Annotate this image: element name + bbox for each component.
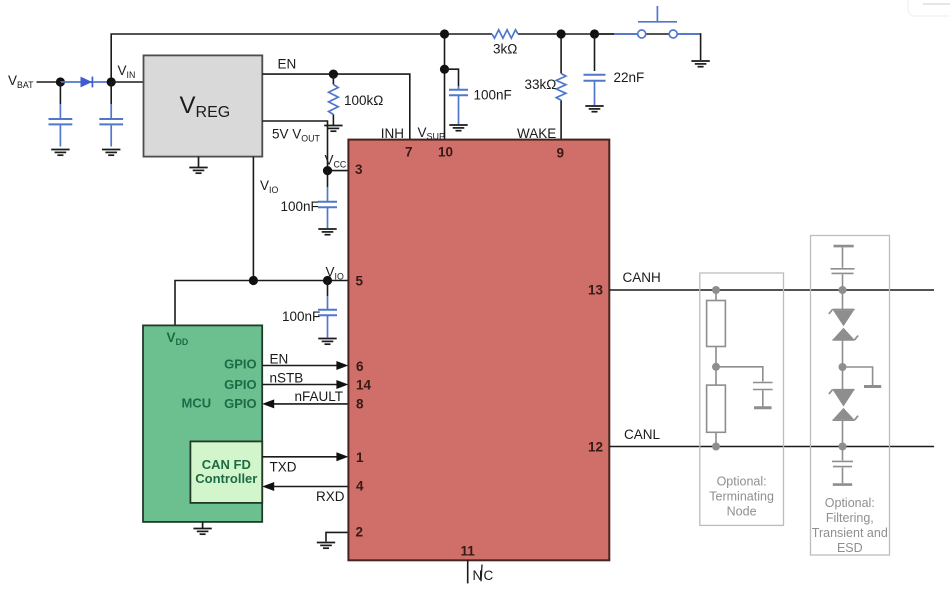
svg-text:MCU: MCU xyxy=(182,395,212,410)
svg-text:1: 1 xyxy=(356,450,364,465)
svg-text:Filtering,: Filtering, xyxy=(826,511,874,525)
svg-text:VSUP: VSUP xyxy=(418,125,446,142)
svg-text:EN: EN xyxy=(270,351,289,366)
svg-text:nFAULT: nFAULT xyxy=(295,389,344,404)
svg-text:100nF: 100nF xyxy=(281,199,319,214)
svg-text:CANH: CANH xyxy=(623,270,661,285)
svg-text:TXD: TXD xyxy=(270,460,297,475)
svg-text:RXD: RXD xyxy=(316,489,345,504)
svg-text:Transient and: Transient and xyxy=(812,526,888,540)
svg-text:GPIO: GPIO xyxy=(224,377,257,392)
svg-text:VIO: VIO xyxy=(260,178,278,195)
svg-text:2: 2 xyxy=(356,525,364,540)
svg-text:VIN: VIN xyxy=(118,63,136,80)
svg-text:VIO: VIO xyxy=(326,265,344,282)
svg-text:Controller: Controller xyxy=(195,471,257,486)
svg-text:100kΩ: 100kΩ xyxy=(344,93,383,108)
svg-text:WAKE: WAKE xyxy=(517,126,556,141)
svg-text:100nF: 100nF xyxy=(474,88,512,103)
svg-text:14: 14 xyxy=(356,378,372,393)
svg-text:INH: INH xyxy=(381,126,404,141)
svg-text:10: 10 xyxy=(438,145,453,160)
svg-text:GPIO: GPIO xyxy=(224,396,257,411)
svg-text:VBAT: VBAT xyxy=(8,73,34,90)
svg-text:22nF: 22nF xyxy=(614,70,645,85)
svg-text:8: 8 xyxy=(356,396,364,411)
svg-text:nSTB: nSTB xyxy=(270,371,304,386)
svg-text:C: C xyxy=(484,568,494,583)
svg-text:3: 3 xyxy=(355,162,363,177)
svg-text:CANL: CANL xyxy=(624,427,661,442)
svg-text:5V VOUT: 5V VOUT xyxy=(272,126,320,143)
svg-text:Optional:: Optional: xyxy=(825,496,875,510)
svg-text:EN: EN xyxy=(278,57,297,72)
svg-text:3kΩ: 3kΩ xyxy=(493,42,517,57)
svg-text:9: 9 xyxy=(557,146,565,161)
svg-text:GPIO: GPIO xyxy=(224,357,257,372)
svg-text:100nF: 100nF xyxy=(282,309,320,324)
svg-text:6: 6 xyxy=(356,359,364,374)
svg-text:CAN FD: CAN FD xyxy=(202,457,251,472)
svg-text:ESD: ESD xyxy=(837,541,863,555)
svg-text:7: 7 xyxy=(405,145,413,160)
svg-text:13: 13 xyxy=(588,283,604,298)
svg-text:12: 12 xyxy=(588,440,603,455)
svg-text:4: 4 xyxy=(356,478,364,493)
svg-text:33kΩ: 33kΩ xyxy=(525,77,557,92)
svg-text:Optional:: Optional: xyxy=(717,475,767,489)
svg-text:11: 11 xyxy=(461,544,476,559)
svg-text:5: 5 xyxy=(356,274,364,289)
svg-text:Terminating: Terminating xyxy=(709,490,774,504)
svg-text:Node: Node xyxy=(727,505,757,519)
